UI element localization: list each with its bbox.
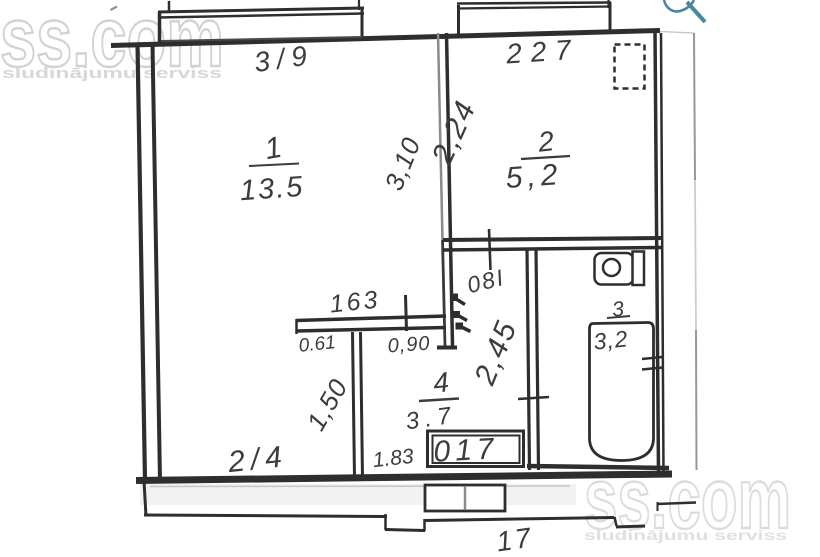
svg-text:2,45: 2,45 (468, 315, 524, 390)
svg-text:0.61: 0.61 (298, 332, 337, 357)
svg-text:3/9: 3/9 (252, 39, 316, 78)
svg-text:2/4: 2/4 (226, 440, 290, 479)
svg-text:1.83: 1.83 (372, 445, 415, 472)
svg-text:sludinājumu serviss: sludinājumu serviss (584, 527, 787, 543)
svg-text:2,24: 2,24 (425, 95, 483, 170)
svg-text:08I: 08I (464, 264, 507, 298)
svg-text:sludinājumu serviss: sludinājumu serviss (2, 65, 222, 82)
svg-text:17: 17 (494, 522, 535, 557)
svg-text:2: 2 (536, 125, 556, 158)
svg-text:3,10: 3,10 (379, 133, 427, 195)
svg-text:1: 1 (262, 131, 284, 166)
svg-text:1,50: 1,50 (301, 373, 354, 435)
svg-text:017: 017 (433, 432, 500, 468)
svg-text:4: 4 (432, 366, 451, 398)
svg-text:3,2: 3,2 (592, 325, 630, 355)
svg-text:0,90: 0,90 (387, 333, 431, 358)
svg-text:13.5: 13.5 (239, 171, 306, 207)
svg-text:163: 163 (328, 285, 381, 318)
svg-text:227: 227 (504, 33, 581, 69)
svg-text:5,2: 5,2 (505, 158, 564, 195)
